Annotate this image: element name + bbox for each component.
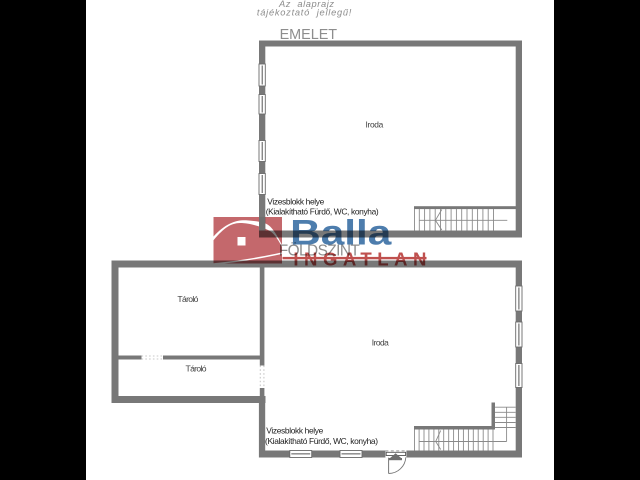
svg-text:Tároló: Tároló bbox=[177, 294, 198, 304]
svg-text:Iroda: Iroda bbox=[372, 337, 389, 347]
svg-text:Tároló: Tároló bbox=[186, 363, 207, 373]
svg-text:Balla: Balla bbox=[290, 212, 393, 252]
svg-text:(Kialakítható Fürdő, WC, konyh: (Kialakítható Fürdő, WC, konyha) bbox=[265, 436, 378, 446]
svg-text:tájékoztató jellegű!: tájékoztató jellegű! bbox=[257, 8, 352, 18]
svg-text:Vizesblokk helye: Vizesblokk helye bbox=[267, 196, 324, 206]
svg-text:INGATLAN: INGATLAN bbox=[293, 248, 426, 269]
svg-text:Vizesblokk helye: Vizesblokk helye bbox=[266, 425, 323, 435]
svg-text:Iroda: Iroda bbox=[366, 119, 384, 129]
